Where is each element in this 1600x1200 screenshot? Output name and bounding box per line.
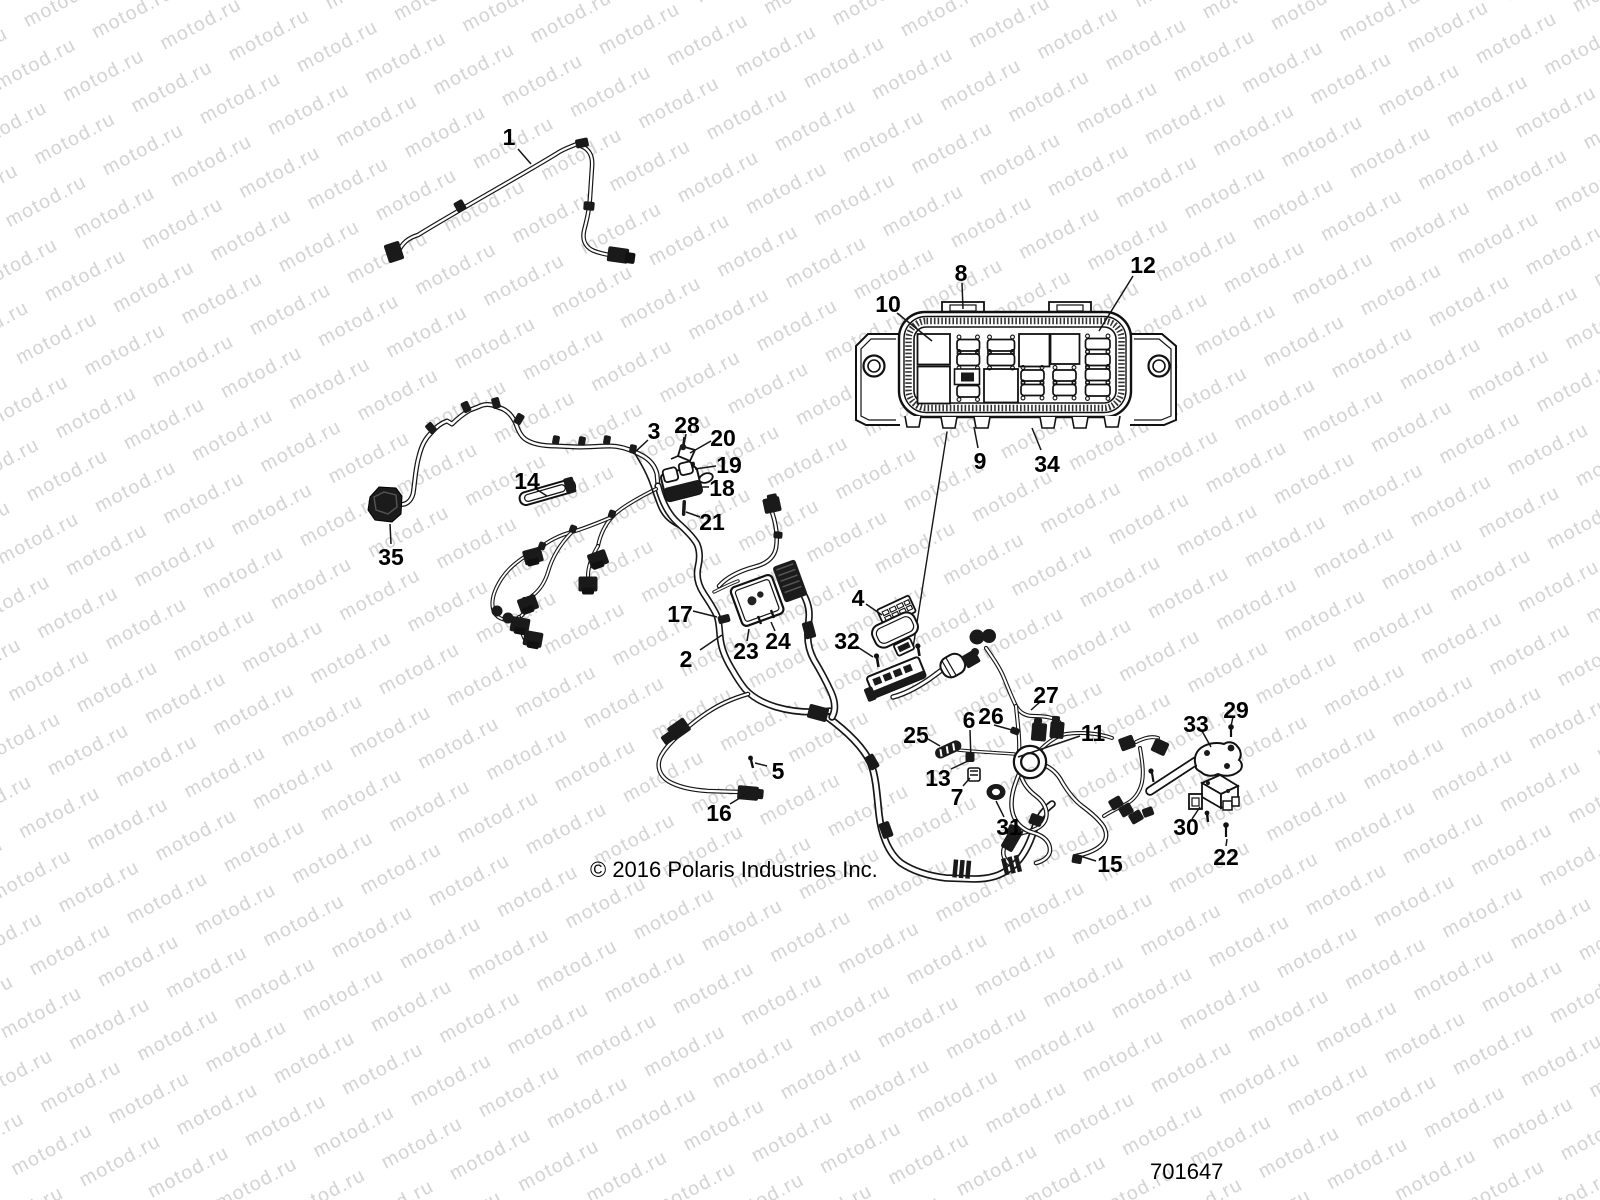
svg-text:12: 12 [1130, 252, 1156, 278]
svg-text:15: 15 [1097, 851, 1123, 877]
svg-text:7: 7 [951, 784, 964, 810]
svg-text:8: 8 [955, 260, 968, 286]
svg-text:© 2016 Polaris Industries Inc.: © 2016 Polaris Industries Inc. [590, 857, 878, 882]
svg-text:13: 13 [925, 765, 951, 791]
svg-text:23: 23 [733, 638, 759, 664]
svg-text:33: 33 [1183, 711, 1209, 737]
svg-text:24: 24 [765, 628, 791, 654]
svg-text:701647: 701647 [1150, 1159, 1223, 1184]
svg-text:31: 31 [996, 814, 1022, 840]
svg-text:14: 14 [514, 468, 540, 494]
svg-text:30: 30 [1173, 814, 1199, 840]
svg-text:6: 6 [963, 707, 976, 733]
svg-text:28: 28 [674, 412, 700, 438]
svg-text:5: 5 [772, 758, 785, 784]
svg-text:19: 19 [716, 452, 742, 478]
svg-text:27: 27 [1033, 682, 1059, 708]
svg-text:11: 11 [1081, 720, 1106, 746]
svg-text:2: 2 [680, 646, 693, 672]
svg-text:16: 16 [706, 800, 732, 826]
svg-text:20: 20 [710, 425, 736, 451]
svg-text:26: 26 [978, 703, 1004, 729]
svg-text:21: 21 [699, 509, 725, 535]
svg-text:18: 18 [709, 475, 735, 501]
svg-text:17: 17 [667, 601, 693, 627]
svg-text:9: 9 [974, 448, 987, 474]
svg-text:29: 29 [1223, 697, 1249, 723]
svg-text:10: 10 [875, 291, 901, 317]
svg-text:35: 35 [378, 544, 404, 570]
svg-text:1: 1 [503, 124, 516, 150]
svg-text:3: 3 [648, 418, 661, 444]
svg-text:25: 25 [903, 722, 929, 748]
svg-text:32: 32 [834, 628, 860, 654]
svg-text:22: 22 [1213, 844, 1239, 870]
svg-text:34: 34 [1034, 451, 1060, 477]
svg-text:4: 4 [852, 585, 865, 611]
